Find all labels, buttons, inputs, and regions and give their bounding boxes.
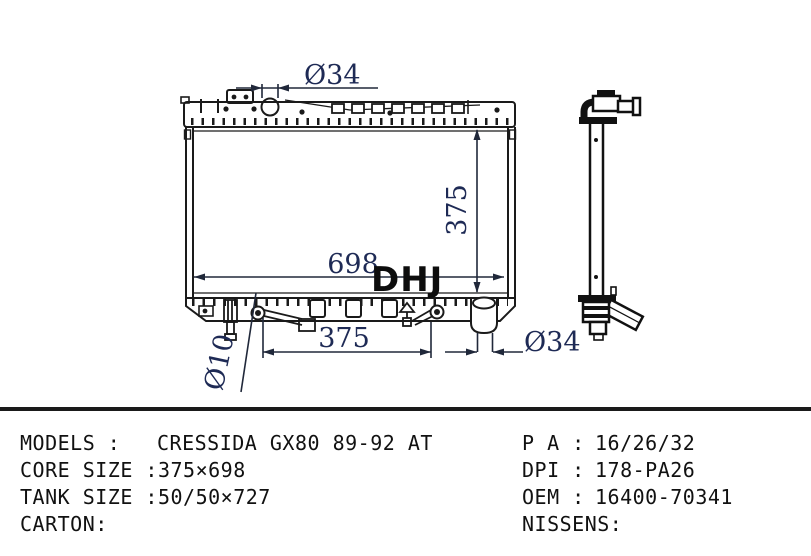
- outlet-diameter-label: Ø34: [524, 327, 581, 358]
- spec-label: P A :: [522, 430, 595, 457]
- separator-line: [0, 407, 811, 411]
- top-tank: [181, 90, 515, 127]
- spec-label: MODELS :: [20, 430, 157, 457]
- core-width-dim: 698: [194, 249, 504, 281]
- spec-value: 178-PA26: [595, 458, 695, 482]
- spec-row-core-size: CORE SIZE :375×698: [20, 457, 433, 484]
- spec-column-right: P A :16/26/32 DPI :178-PA26 OEM :16400-7…: [522, 430, 733, 538]
- spec-row-pa: P A :16/26/32: [522, 430, 733, 457]
- mount-span-dim: 375: [263, 318, 431, 358]
- spec-row-oem: OEM :16400-70341: [522, 484, 733, 511]
- core-height-dim: 375: [442, 129, 481, 293]
- mount-span-label: 375: [318, 323, 370, 354]
- watermark-text: DHJ: [371, 260, 443, 300]
- outlet-fitting: [578, 287, 643, 340]
- top-tabs: [332, 104, 464, 113]
- spec-label: OEM :: [522, 484, 595, 511]
- technical-drawing: Ø34 375 698 DHJ 375: [0, 0, 811, 415]
- spec-label: CORE SIZE :: [20, 457, 158, 484]
- spec-value: 375×698: [158, 458, 246, 482]
- left-bracket: [252, 307, 316, 332]
- side-body: [590, 124, 603, 295]
- drain-plug: [400, 303, 414, 326]
- spec-row-tank-size: TANK SIZE :50/50×727: [20, 484, 433, 511]
- spec-row-nissens: NISSENS:: [522, 511, 733, 538]
- spec-label: DPI :: [522, 457, 595, 484]
- spec-value: 50/50×727: [158, 485, 271, 509]
- right-bracket: [412, 306, 444, 326]
- spec-label: CARTON:: [20, 511, 157, 538]
- outlet-pipe: [471, 298, 497, 334]
- spec-column-left: MODELS :CRESSIDA GX80 89-92 AT CORE SIZE…: [20, 430, 433, 538]
- spec-row-carton: CARTON:: [20, 511, 433, 538]
- radiator-side-view: [578, 90, 643, 340]
- spec-value: CRESSIDA GX80 89-92 AT: [157, 431, 433, 455]
- bottom-notches: [310, 300, 397, 317]
- spec-row-dpi: DPI :178-PA26: [522, 457, 733, 484]
- core-height-label: 375: [442, 184, 473, 236]
- spec-value: 16/26/32: [595, 431, 695, 455]
- spec-label: TANK SIZE :: [20, 484, 158, 511]
- spec-value: 16400-70341: [595, 485, 733, 509]
- outlet-diameter-dim: Ø34: [445, 327, 581, 358]
- filler-neck-diameter-label: Ø34: [304, 60, 361, 91]
- filler-neck-diameter-dim: Ø34: [236, 60, 378, 98]
- inlet-fitting: [579, 90, 640, 124]
- spec-row-models: MODELS :CRESSIDA GX80 89-92 AT: [20, 430, 433, 457]
- spec-label: NISSENS:: [522, 511, 622, 538]
- pin-diameter-label: Ø10: [199, 331, 241, 393]
